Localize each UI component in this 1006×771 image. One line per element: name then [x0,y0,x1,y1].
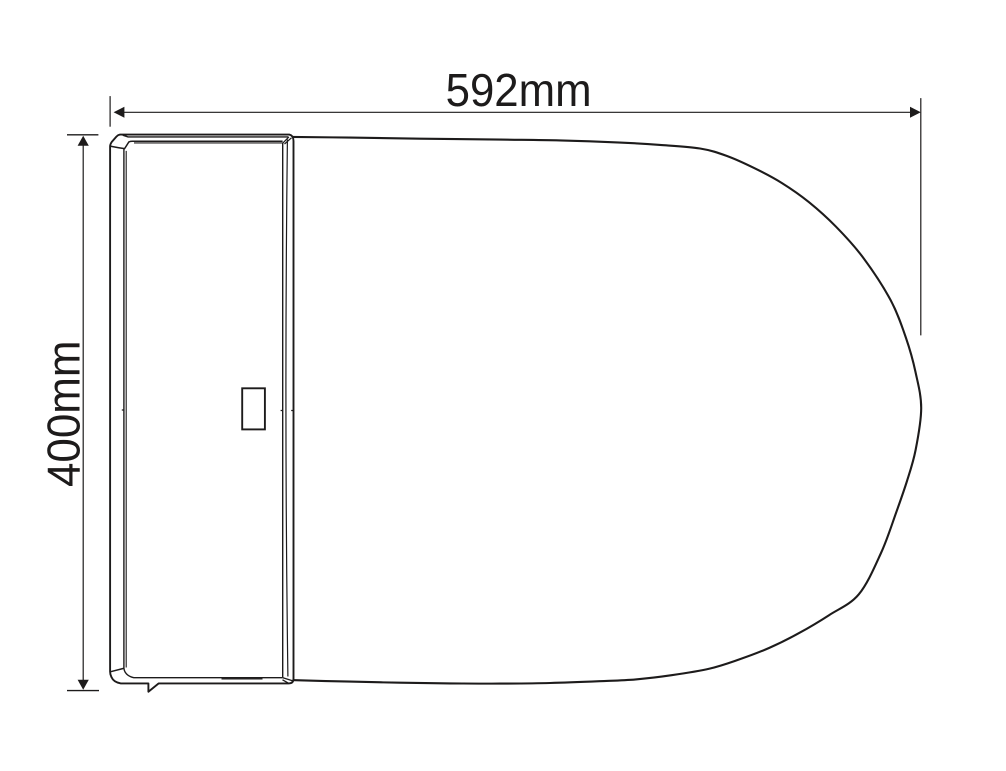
svg-text:400mm: 400mm [37,341,89,488]
svg-text:592mm: 592mm [446,64,592,116]
